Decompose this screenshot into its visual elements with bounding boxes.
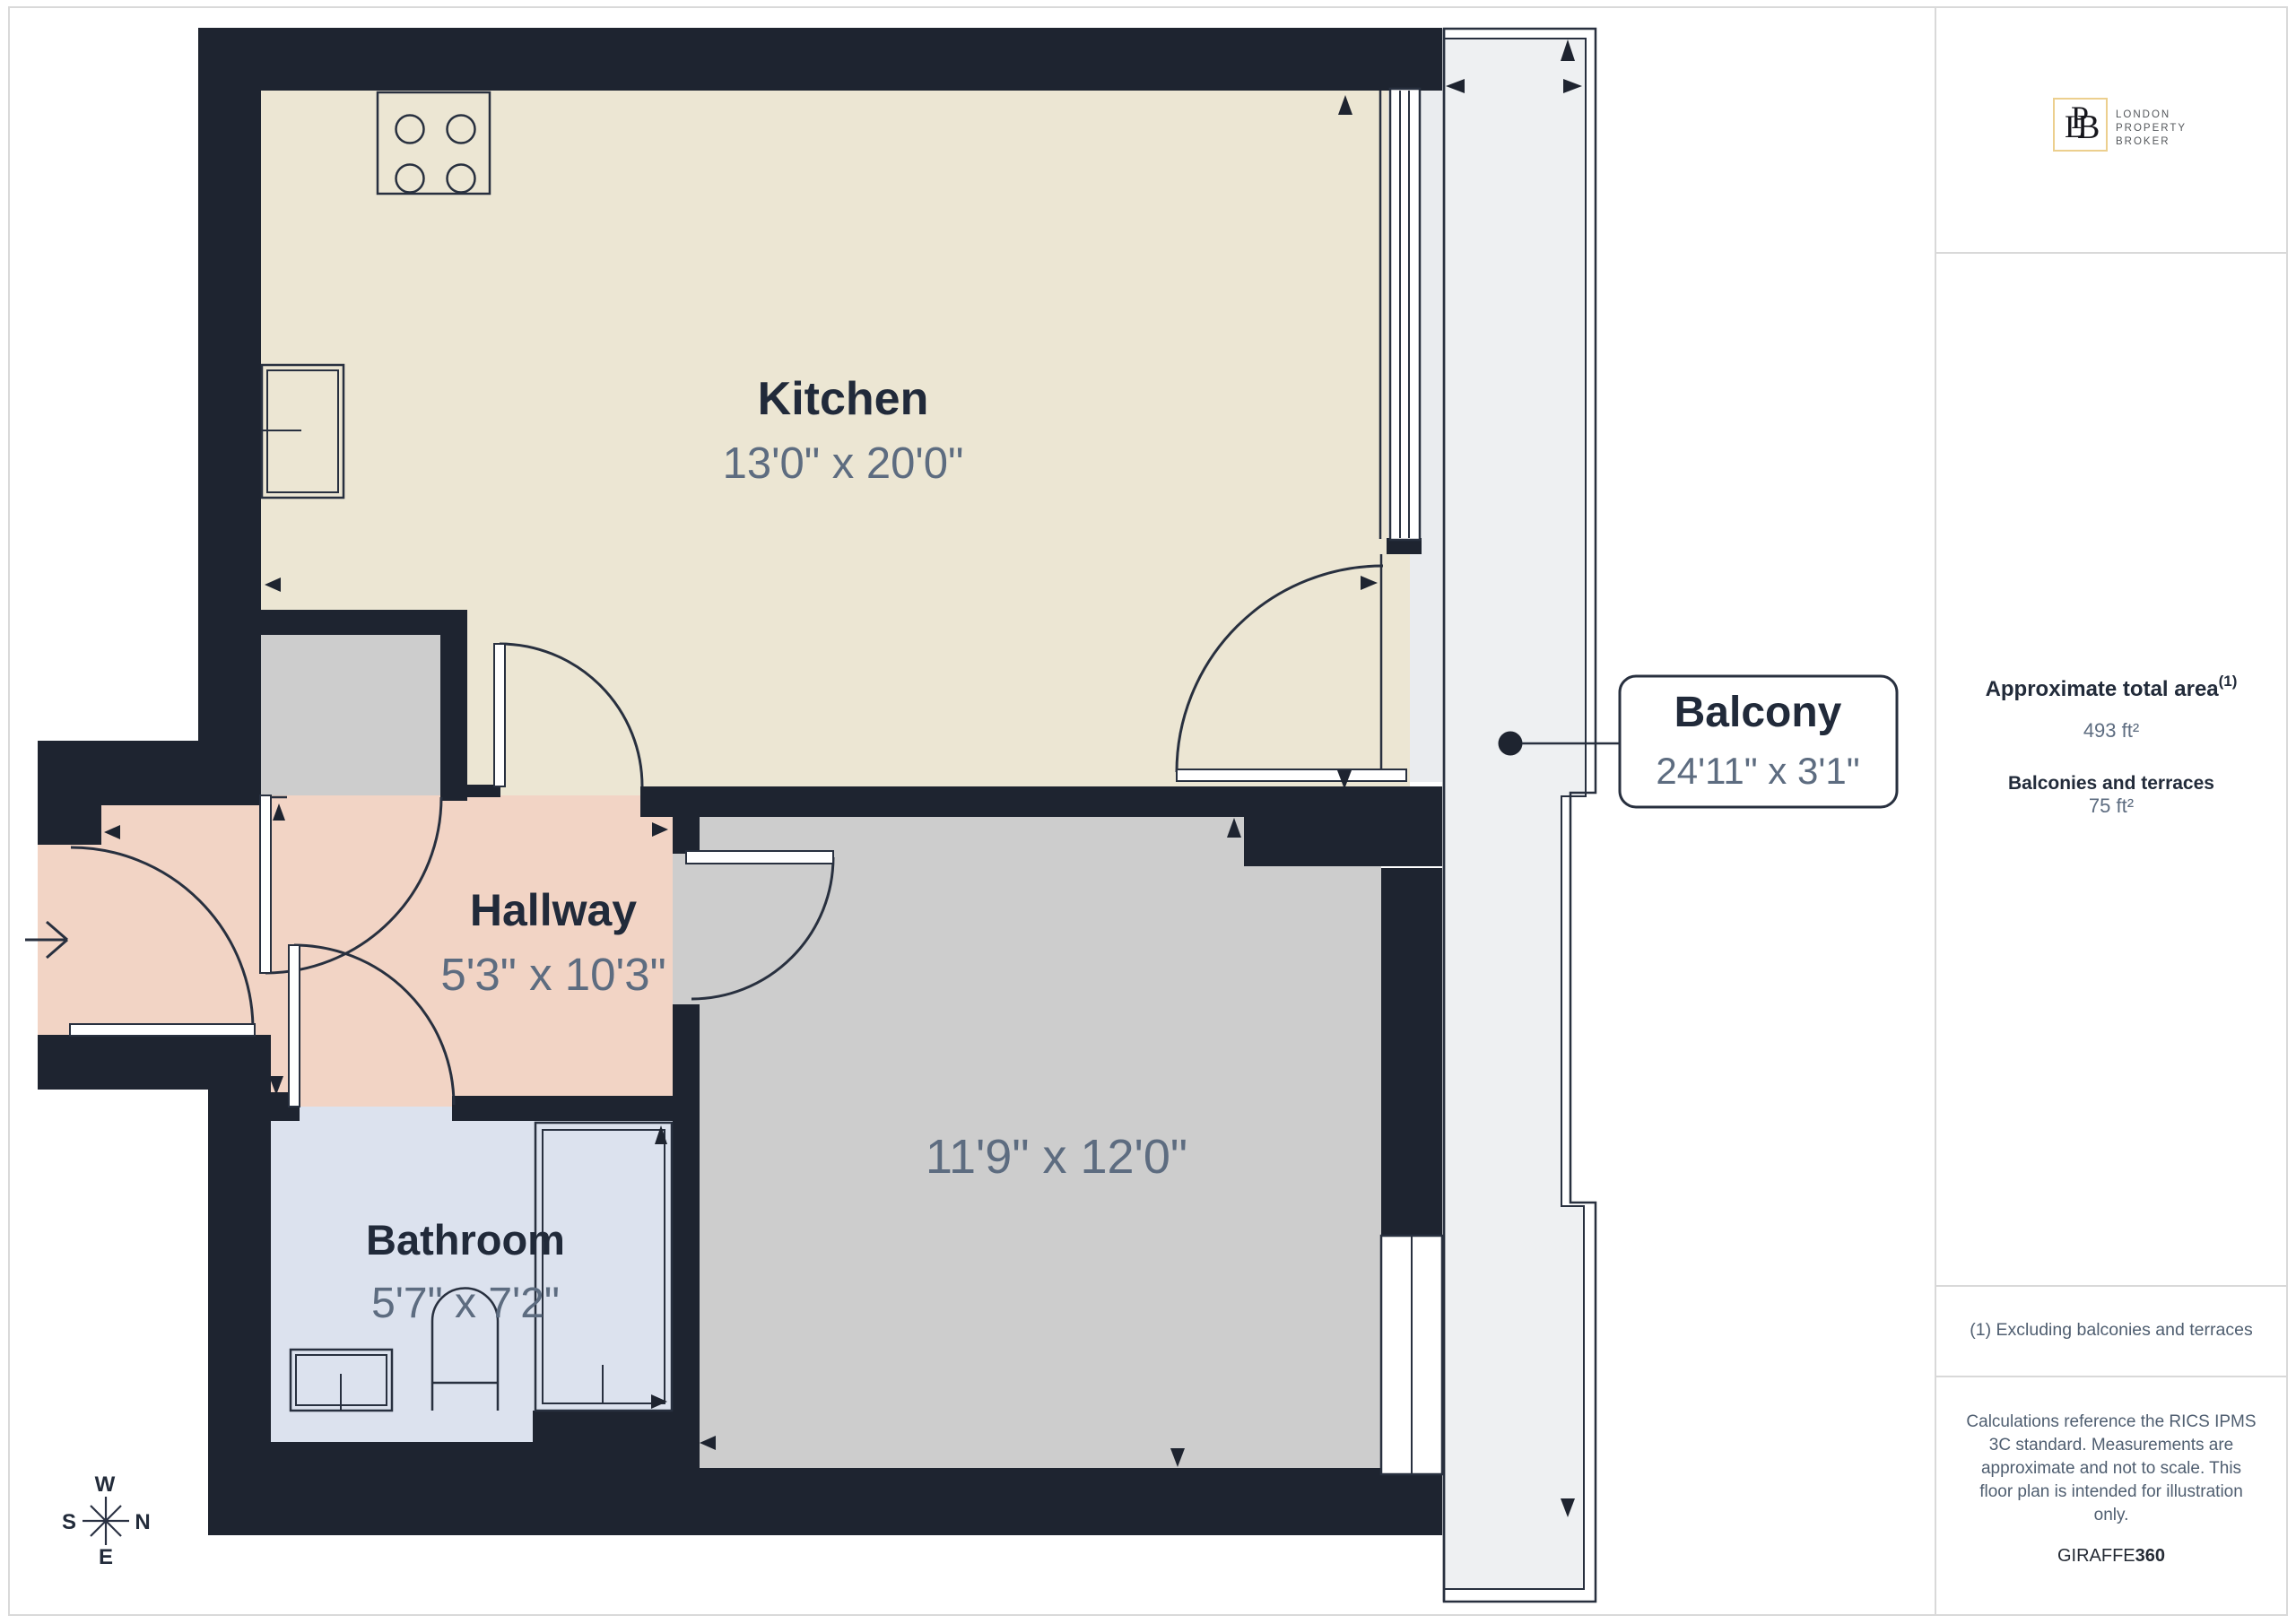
- svg-text:Kitchen: Kitchen: [758, 373, 929, 425]
- svg-text:5'7" x 7'2": 5'7" x 7'2": [371, 1280, 560, 1327]
- svg-text:approximate and not to scale.: approximate and not to scale. This: [1981, 1459, 2241, 1478]
- svg-text:3C standard. Measurements are: 3C standard. Measurements are: [1989, 1436, 2233, 1455]
- svg-text:5'3" x 10'3": 5'3" x 10'3": [440, 949, 665, 1000]
- svg-text:Calculations reference the RIC: Calculations reference the RICS IPMS: [1966, 1412, 2256, 1431]
- svg-text:BROKER: BROKER: [2116, 136, 2170, 147]
- svg-text:only.: only.: [2094, 1506, 2129, 1524]
- svg-text:PROPERTY: PROPERTY: [2116, 123, 2187, 134]
- svg-text:75 ft²: 75 ft²: [2089, 795, 2134, 817]
- svg-text:floor plan is intended for ill: floor plan is intended for illustration: [1979, 1482, 2243, 1501]
- svg-text:Hallway: Hallway: [470, 885, 637, 935]
- svg-text:GIRAFFE360: GIRAFFE360: [2057, 1546, 2165, 1566]
- svg-text:B: B: [2077, 109, 2100, 146]
- svg-text:Balconies and terraces: Balconies and terraces: [2008, 773, 2214, 794]
- svg-text:493 ft²: 493 ft²: [2083, 719, 2139, 742]
- svg-text:E: E: [99, 1545, 113, 1569]
- svg-text:N: N: [135, 1510, 150, 1534]
- svg-text:Balcony: Balcony: [1674, 689, 1842, 736]
- svg-text:Bathroom: Bathroom: [366, 1216, 565, 1264]
- svg-text:Approximate total area(1): Approximate total area(1): [1986, 673, 2238, 701]
- svg-text:(1) Excluding balconies and te: (1) Excluding balconies and terraces: [1970, 1320, 2253, 1340]
- svg-text:24'11" x 3'1": 24'11" x 3'1": [1656, 750, 1859, 792]
- svg-text:LONDON: LONDON: [2116, 109, 2170, 120]
- svg-text:13'0" x 20'0": 13'0" x 20'0": [723, 439, 964, 488]
- svg-text:W: W: [95, 1472, 116, 1497]
- svg-text:S: S: [62, 1510, 76, 1534]
- svg-text:11'9" x 12'0": 11'9" x 12'0": [926, 1130, 1187, 1184]
